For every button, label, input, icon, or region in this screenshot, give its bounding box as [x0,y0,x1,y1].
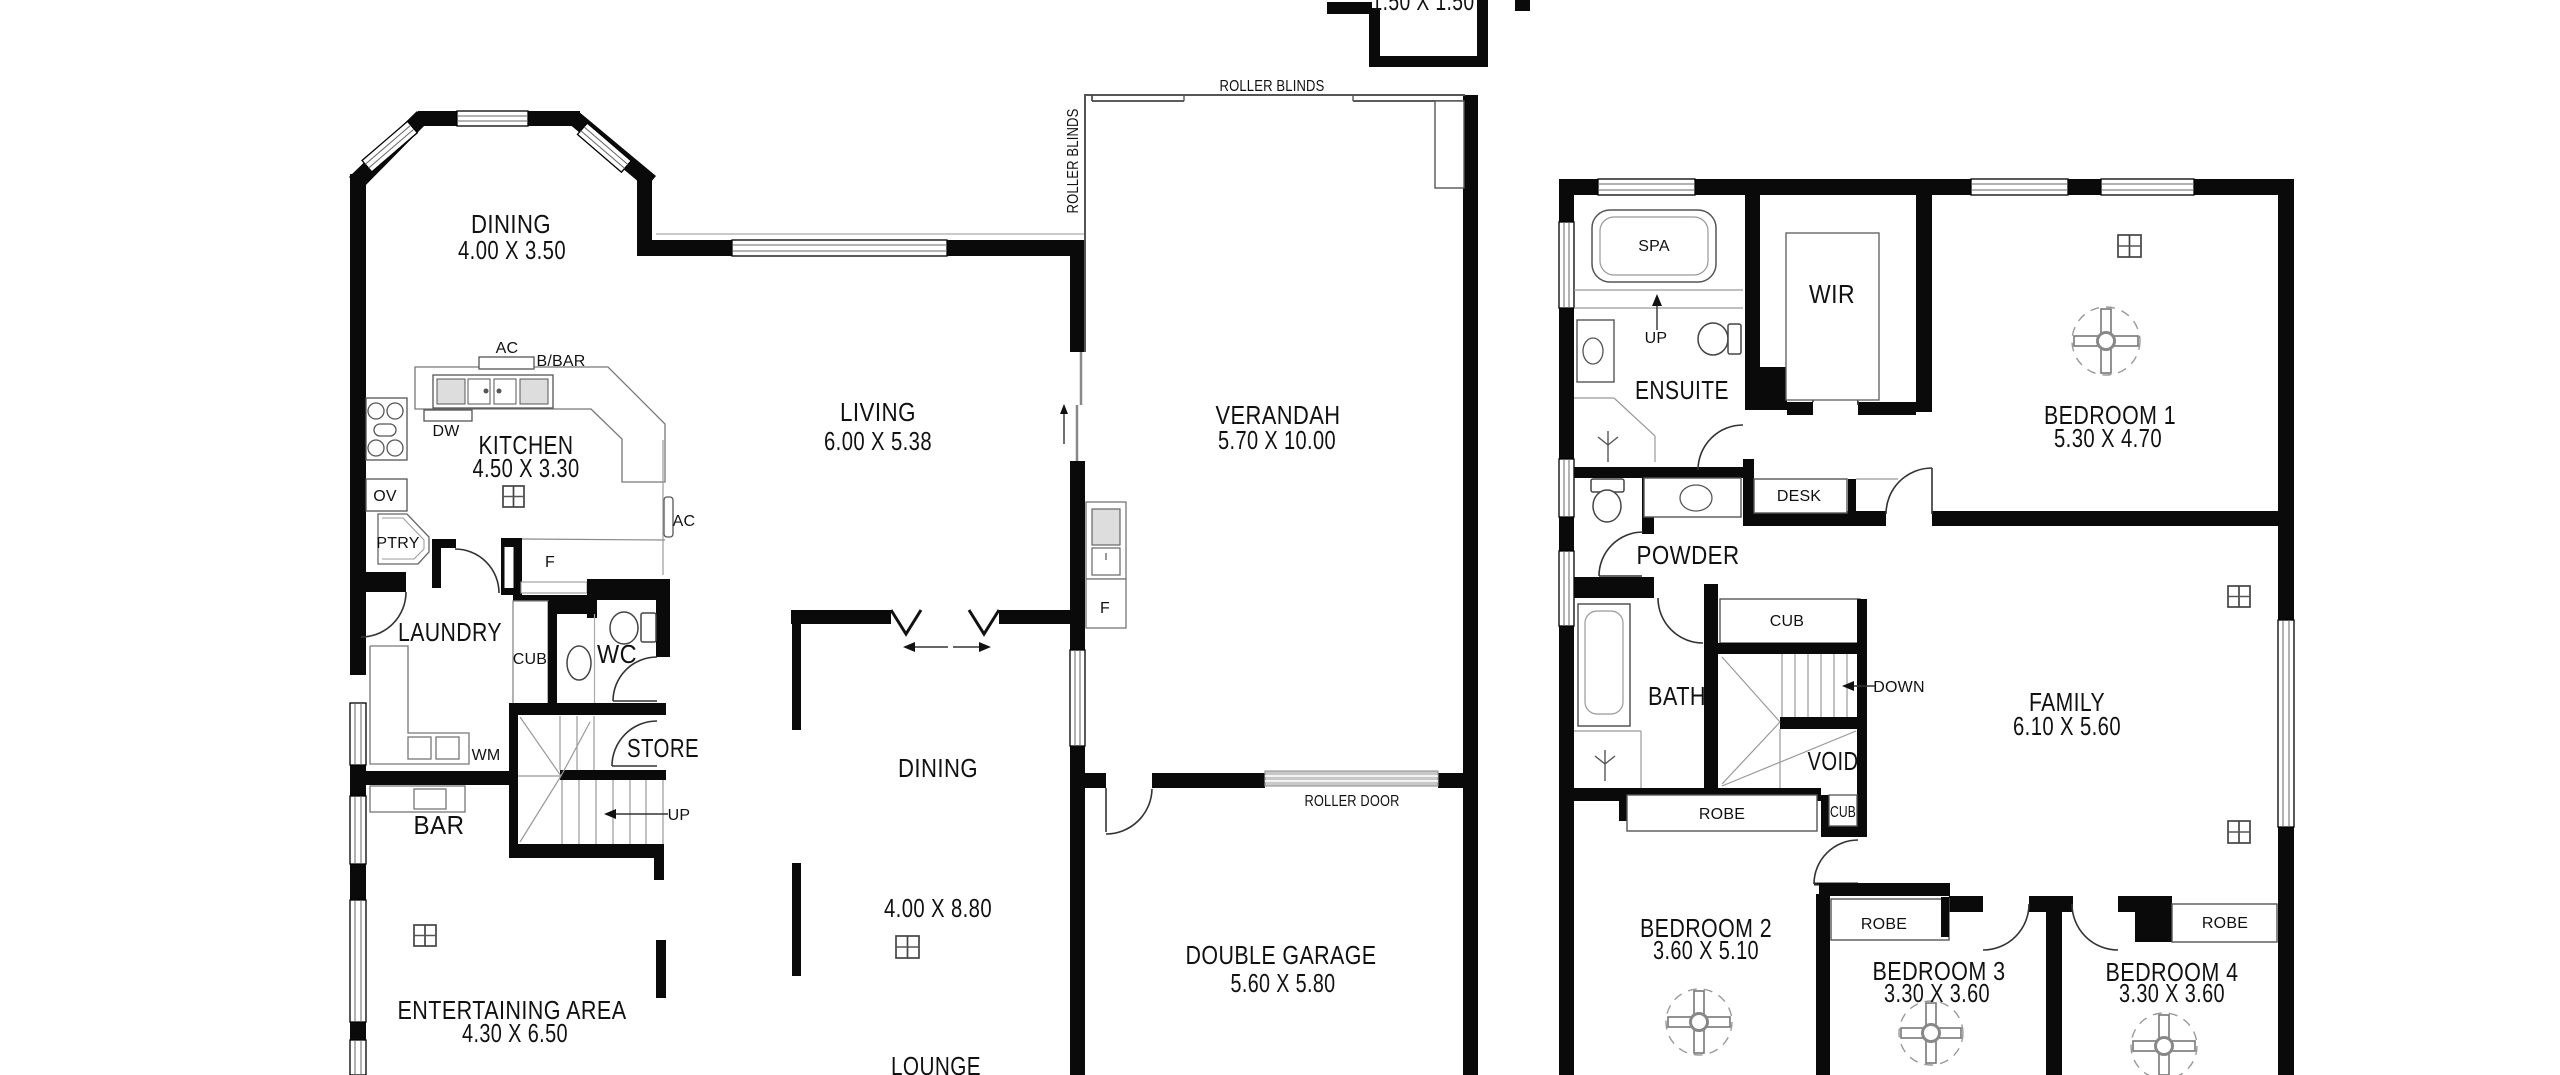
svg-text:WM: WM [472,747,501,764]
svg-text:VOID: VOID [1808,746,1859,776]
svg-text:DINING: DINING [898,753,978,783]
svg-text:DESK: DESK [1777,488,1821,505]
svg-text:4.00 X 8.80: 4.00 X 8.80 [884,893,992,923]
svg-text:WIR: WIR [1809,279,1855,309]
svg-text:POWDER: POWDER [1637,540,1740,570]
svg-text:WC: WC [597,639,637,669]
svg-text:5.60 X 5.80: 5.60 X 5.80 [1231,968,1336,998]
svg-text:3.30 X 3.60: 3.30 X 3.60 [1884,978,1990,1008]
svg-text:SPA: SPA [1638,238,1670,255]
svg-text:5.70 X 10.00: 5.70 X 10.00 [1218,425,1336,455]
svg-text:DW: DW [432,423,460,440]
svg-text:UP: UP [1645,330,1668,347]
svg-text:UP: UP [668,807,691,824]
svg-text:F: F [1100,600,1110,617]
svg-text:STORE: STORE [627,733,699,763]
svg-text:6.00 X 5.38: 6.00 X 5.38 [824,426,932,456]
svg-text:LAUNDRY: LAUNDRY [398,617,502,647]
svg-text:ROBE: ROBE [1861,916,1907,933]
svg-text:AC: AC [496,340,519,357]
svg-text:4.50 X 3.30: 4.50 X 3.30 [473,453,580,483]
svg-text:CUB: CUB [513,651,547,668]
svg-text:1.50 X 1.50: 1.50 X 1.50 [1372,0,1475,16]
svg-text:DOUBLE GARAGE: DOUBLE GARAGE [1186,940,1377,970]
svg-text:ROLLER BLINDS: ROLLER BLINDS [1065,109,1082,214]
svg-text:3.60 X 5.10: 3.60 X 5.10 [1653,935,1759,965]
svg-text:AC: AC [673,513,696,530]
svg-text:LOUNGE: LOUNGE [891,1051,981,1075]
svg-text:LIVING: LIVING [840,397,916,427]
svg-text:ROLLER DOOR: ROLLER DOOR [1305,793,1400,810]
svg-text:6.10 X 5.60: 6.10 X 5.60 [2013,711,2121,741]
svg-text:ROBE: ROBE [2202,915,2248,932]
svg-text:BATH: BATH [1648,681,1706,711]
svg-text:CUB: CUB [1830,804,1856,821]
svg-text:PTRY: PTRY [376,535,419,552]
svg-text:ENSUITE: ENSUITE [1635,375,1729,405]
svg-text:CUB: CUB [1770,613,1804,630]
svg-text:F: F [545,554,555,571]
svg-text:B/BAR: B/BAR [536,353,585,370]
svg-text:BAR: BAR [414,810,465,840]
svg-text:OV: OV [373,488,397,505]
svg-text:3.30 X 3.60: 3.30 X 3.60 [2119,978,2225,1008]
svg-text:5.30 X 4.70: 5.30 X 4.70 [2054,423,2162,453]
svg-text:4.00 X 3.50: 4.00 X 3.50 [458,235,566,265]
svg-text:DOWN: DOWN [1873,679,1924,696]
svg-text:ROLLER BLINDS: ROLLER BLINDS [1220,78,1325,95]
svg-text:4.30 X 6.50: 4.30 X 6.50 [462,1018,568,1048]
svg-text:ROBE: ROBE [1699,806,1745,823]
